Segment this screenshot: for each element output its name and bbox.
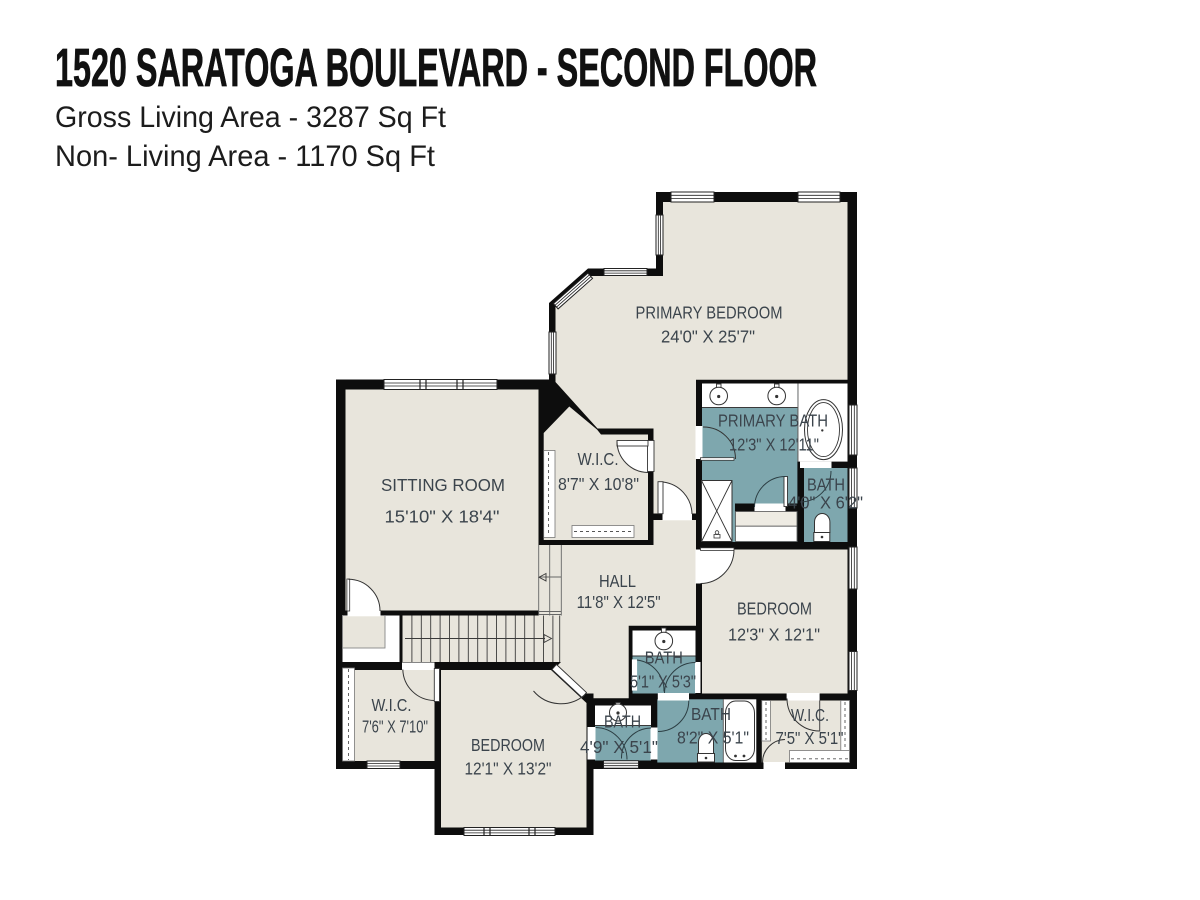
svg-text:BATH: BATH <box>807 475 845 495</box>
svg-text:Non- Living Area - 1170 Sq Ft: Non- Living Area - 1170 Sq Ft <box>55 140 436 173</box>
svg-text:12'1" X 13'2": 12'1" X 13'2" <box>465 759 552 779</box>
svg-text:12'3" X 12'11": 12'3" X 12'11" <box>729 435 819 455</box>
svg-text:24'0" X 25'7": 24'0" X 25'7" <box>661 327 755 347</box>
svg-text:W.I.C.: W.I.C. <box>372 695 412 715</box>
svg-text:PRIMARY BEDROOM: PRIMARY BEDROOM <box>636 303 783 323</box>
svg-text:4'9" X 5'1": 4'9" X 5'1" <box>580 737 658 757</box>
svg-text:PRIMARY BATH: PRIMARY BATH <box>718 411 828 431</box>
svg-text:BATH: BATH <box>604 712 641 732</box>
svg-text:BATH: BATH <box>691 704 731 724</box>
svg-text:8'7" X 10'8": 8'7" X 10'8" <box>558 474 639 494</box>
svg-text:BEDROOM: BEDROOM <box>471 735 545 755</box>
svg-text:Gross Living Area - 3287 Sq Ft: Gross Living Area - 3287 Sq Ft <box>55 101 447 134</box>
svg-text:7'6" X 7'10": 7'6" X 7'10" <box>362 717 428 737</box>
svg-text:W.I.C.: W.I.C. <box>791 705 829 725</box>
svg-text:W.I.C.: W.I.C. <box>578 449 619 469</box>
svg-text:8'2" X 5'1": 8'2" X 5'1" <box>677 728 749 748</box>
svg-text:SITTING ROOM: SITTING ROOM <box>381 475 505 495</box>
svg-text:11'8" X 12'5": 11'8" X 12'5" <box>577 592 661 612</box>
svg-text:BEDROOM: BEDROOM <box>737 599 812 619</box>
svg-text:1520 SARATOGA BOULEVARD - SECO: 1520 SARATOGA BOULEVARD - SECOND FLOOR <box>55 38 817 98</box>
svg-text:4'0" X 6'2": 4'0" X 6'2" <box>788 493 863 513</box>
svg-text:BATH: BATH <box>645 648 683 668</box>
svg-text:HALL: HALL <box>599 571 636 591</box>
svg-text:12'3" X 12'1": 12'3" X 12'1" <box>728 625 820 645</box>
svg-text:7'5" X 5'1": 7'5" X 5'1" <box>776 728 844 748</box>
svg-text:15'10" X 18'4": 15'10" X 18'4" <box>385 507 500 527</box>
svg-text:5'1" X 5'3": 5'1" X 5'3" <box>630 672 696 692</box>
